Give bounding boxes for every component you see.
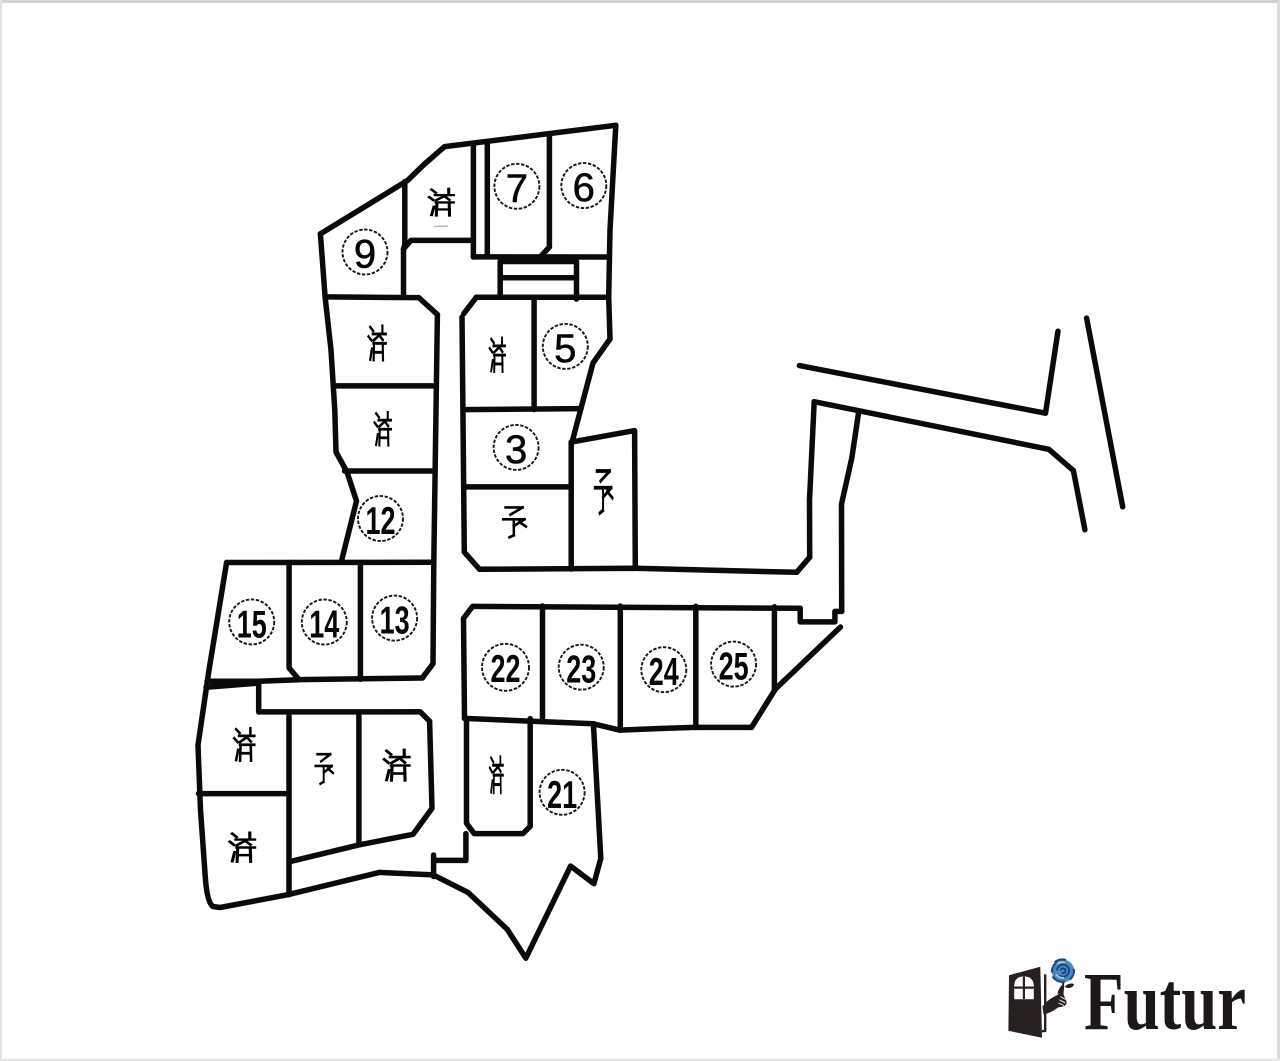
svg-text:24: 24 [649, 651, 679, 694]
svg-text:12: 12 [366, 500, 396, 543]
svg-text:3: 3 [505, 428, 527, 472]
svg-text:23: 23 [566, 649, 596, 692]
svg-text:5: 5 [554, 327, 576, 371]
svg-text:25: 25 [719, 646, 749, 689]
svg-text:22: 22 [491, 648, 521, 691]
svg-text:6: 6 [573, 166, 595, 210]
svg-text:21: 21 [547, 774, 577, 817]
svg-text:7: 7 [506, 167, 528, 211]
svg-text:14: 14 [309, 604, 339, 647]
svg-text:Futur: Futur [1084, 955, 1246, 1047]
svg-text:15: 15 [237, 603, 267, 646]
svg-text:13: 13 [380, 600, 410, 643]
svg-text:9: 9 [354, 233, 376, 277]
